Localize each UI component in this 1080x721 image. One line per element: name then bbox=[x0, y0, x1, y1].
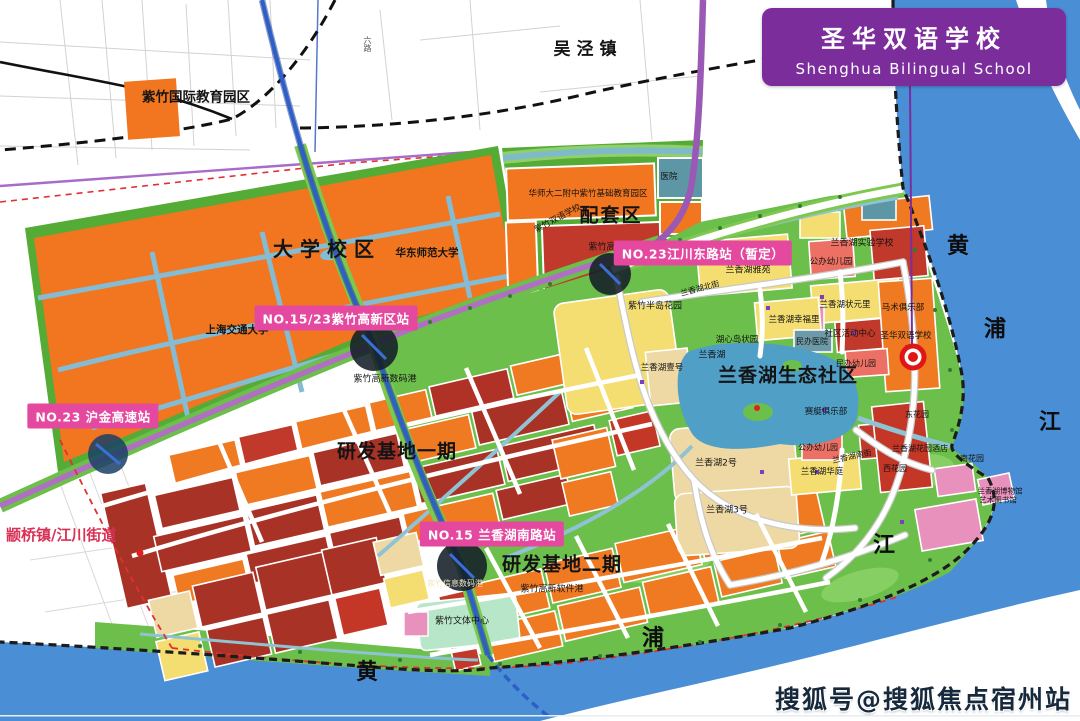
river-char-jiang-right: 江 bbox=[1039, 412, 1061, 434]
label-public-kindergarten-north: 公办幼儿园 bbox=[810, 258, 853, 267]
label-ecnu: 华东师范大学 bbox=[396, 248, 459, 259]
label-lxh-no3: 兰香湖3号 bbox=[706, 507, 748, 516]
pink-parcel-southwest bbox=[404, 612, 428, 636]
label-peitao-district: 配套区 bbox=[579, 207, 642, 226]
label-hospital: 医院 bbox=[660, 173, 677, 182]
label-art-library: 艺术图书馆 bbox=[979, 496, 1017, 504]
label-digital-port: 紫竹高新数码港 bbox=[353, 376, 416, 385]
badge-lanxianghu-south-station: NO.15 兰香湖南路站 bbox=[420, 522, 564, 547]
label-rd-base-2: 研发基地二期 bbox=[502, 556, 622, 575]
intl-education-parcel bbox=[124, 78, 180, 139]
river-char-pu-bottom: 浦 bbox=[642, 628, 664, 650]
label-culture-sports-center: 紫竹文体中心 bbox=[435, 618, 489, 627]
label-lxh-no2: 兰香湖2号 bbox=[695, 460, 737, 469]
school-location-marker bbox=[900, 344, 927, 371]
label-community-center: 社区活动中心 bbox=[824, 330, 875, 339]
label-eco-community: 兰香湖生态社区 bbox=[718, 367, 858, 386]
red-dot-annotation bbox=[137, 550, 144, 557]
label-public-kindergarten-south: 公办幼儿园 bbox=[798, 444, 838, 452]
banner-title-zh: 圣华双语学校 bbox=[762, 19, 1066, 54]
island-flower-icon bbox=[754, 405, 760, 411]
banner-title-en: Shenghua Bilingual School bbox=[762, 60, 1066, 78]
label-east-garden: 东花园 bbox=[905, 411, 929, 419]
label-info-port: 紫竹信息数码港 bbox=[427, 580, 483, 588]
label-west-garden: 西花园 bbox=[883, 465, 907, 473]
label-software-port: 紫竹高新软件港 bbox=[520, 586, 583, 595]
river-char-huang-right: 黄 bbox=[947, 236, 969, 258]
label-hsd-school: 华师大二附中紫竹基础教育园区 bbox=[528, 190, 647, 199]
label-zhuanqiao: 颛桥镇/江川街道 bbox=[6, 528, 116, 543]
river-char-huang-bottom: 黄 bbox=[356, 662, 378, 684]
label-garden-hotel: 兰香湖花园酒店 bbox=[892, 445, 948, 453]
planning-map: 紫竹国际教育园区 吴泾镇 大学校区 华东师范大学 上海交通大学 配套区 华师大二… bbox=[0, 0, 1080, 721]
river-char-jiang-bottom: 江 bbox=[873, 535, 895, 557]
label-yayuan: 兰香湖雅苑 bbox=[725, 267, 770, 276]
badge-hitech-station: NO.15/23紫竹高新区站 bbox=[255, 306, 418, 331]
badge-jiangchuan-east-station: NO.23江川东路站（暂定） bbox=[614, 241, 792, 266]
badge-hujin-expressway-station: NO.23 沪金高速站 bbox=[27, 404, 158, 429]
river-char-pu-right: 浦 bbox=[984, 319, 1006, 341]
label-lxh-no1: 兰香湖壹号 bbox=[641, 364, 684, 373]
school-banner: 圣华双语学校 Shenghua Bilingual School bbox=[762, 8, 1066, 86]
label-rowing-club: 赛艇俱乐部 bbox=[805, 408, 848, 417]
label-huating: 兰香湖华庭 bbox=[801, 468, 844, 477]
label-liu-road: 六路 bbox=[363, 36, 371, 52]
label-wujing-town: 吴泾镇 bbox=[554, 42, 623, 59]
label-zizhu-intl-education: 紫竹国际教育园区 bbox=[142, 91, 250, 105]
label-university-campus: 大学校区 bbox=[273, 239, 381, 259]
label-lake-island-park: 湖心岛状园 bbox=[716, 336, 759, 345]
label-xingfuli: 兰香湖幸福里 bbox=[768, 316, 819, 325]
label-equestrian-club: 马术俱乐部 bbox=[882, 304, 925, 313]
label-museum: 兰香湖博物馆 bbox=[978, 487, 1023, 495]
label-private-hospital: 民办医院 bbox=[796, 338, 828, 346]
label-zhuangyuanli: 兰香湖状元里 bbox=[819, 301, 870, 310]
label-shenghua-school-parcel: 圣华双语学校 bbox=[880, 332, 931, 341]
map-canvas bbox=[0, 0, 1080, 721]
label-lanxiang-lake: 兰香湖 bbox=[698, 352, 725, 361]
label-south-garden: 南花园 bbox=[960, 455, 984, 463]
sohu-watermark: 搜狐号@搜狐焦点宿州站 bbox=[775, 680, 1072, 716]
label-experimental-school: 兰香湖实验学校 bbox=[830, 240, 893, 249]
label-bandao-garden: 紫竹半岛花园 bbox=[628, 303, 682, 312]
label-private-kindergarten-east: 民办幼儿园 bbox=[836, 360, 876, 368]
label-rd-base-1: 研发基地一期 bbox=[337, 443, 457, 462]
